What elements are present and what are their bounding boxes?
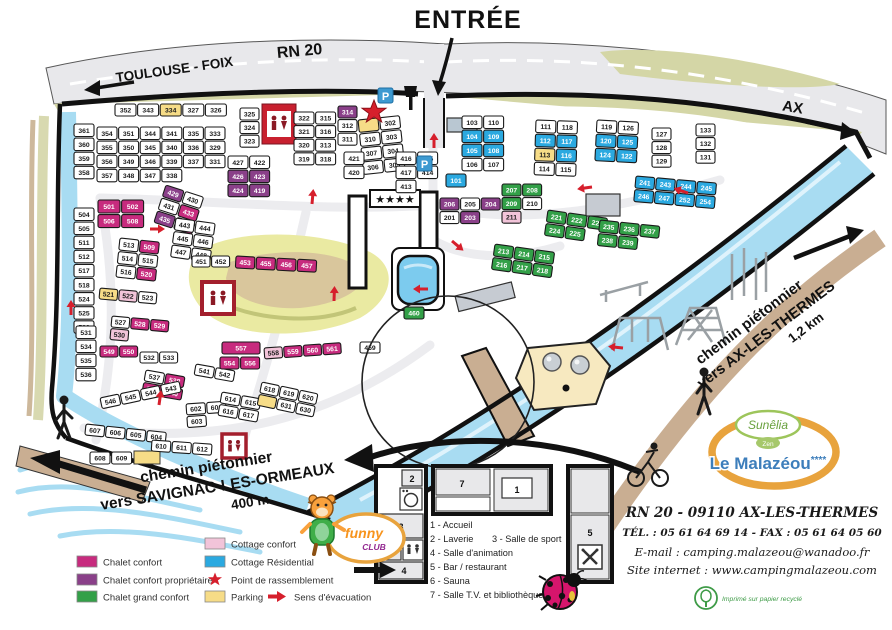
- plot-number: 112: [540, 138, 551, 145]
- plot-number: 252: [679, 197, 691, 205]
- plot-number: 208: [526, 188, 538, 195]
- plot-number: 356: [101, 159, 113, 166]
- plot-number: 518: [78, 282, 90, 289]
- sanitary-building: [262, 104, 296, 144]
- legend-label: Cottage Résidential: [231, 558, 314, 569]
- plot-number: 327: [188, 108, 200, 115]
- plot-number: 347: [145, 173, 157, 180]
- plot-number: 106: [466, 162, 478, 169]
- plot-number: 455: [260, 261, 272, 269]
- plot-number: 334: [165, 108, 177, 115]
- plot-number: 238: [601, 237, 613, 245]
- plot-number: 501: [103, 204, 115, 211]
- plot-number: 513: [123, 242, 135, 250]
- plot-number: 529: [153, 323, 165, 331]
- tel-fax-line: TÉL. : 05 61 64 69 14 - FAX : 05 61 64 0…: [622, 525, 882, 539]
- plot-number: 110: [488, 120, 499, 127]
- plot-number: 612: [196, 446, 208, 454]
- legend-label: Chalet grand confort: [103, 593, 189, 604]
- plot-number: 605: [130, 432, 142, 440]
- plot-cluster: 127128129: [652, 128, 671, 167]
- plot-cluster: 314312311: [338, 106, 357, 145]
- plot-number: 117: [561, 139, 572, 146]
- plot-number: 339: [166, 159, 178, 166]
- jack-ball-icon: [563, 385, 570, 392]
- river-bank-vegetation: [38, 116, 44, 420]
- plot-number: 335: [188, 131, 200, 138]
- plot-number: 302: [384, 120, 396, 128]
- plot-number: 315: [320, 116, 332, 123]
- inset-legend-line: 7 - Salle T.V. et bibliothèque: [430, 590, 543, 600]
- inset-room-5: 5: [587, 528, 592, 538]
- plot-number: 350: [123, 145, 135, 152]
- plot-number: 338: [166, 173, 178, 180]
- plot-number: 417: [400, 170, 412, 177]
- plot-number: 235: [603, 224, 615, 232]
- plot-number: 512: [78, 254, 90, 261]
- plot-number: 329: [209, 145, 221, 152]
- plot-number: 609: [116, 456, 128, 463]
- plot-number: 340: [166, 145, 178, 152]
- washing-machine-icon: [400, 488, 422, 510]
- plot-number: 427: [232, 160, 244, 167]
- inset-room-1: 1: [514, 485, 519, 495]
- plot-number: 504: [78, 212, 90, 219]
- plot-cluster: 557: [222, 342, 260, 354]
- parking-sign-label: P: [382, 91, 389, 103]
- plot-number: 352: [120, 108, 132, 115]
- plot-number: 131: [700, 155, 712, 162]
- plot-number: 104: [466, 134, 478, 141]
- plot-number: 559: [287, 349, 299, 357]
- plot-number: 511: [79, 240, 90, 247]
- plot-number: 203: [464, 215, 476, 222]
- plot-number: 611: [176, 445, 188, 453]
- address-line: RN 20 - 09110 AX-LES-THERMES: [625, 505, 879, 521]
- plot-number: 114: [539, 166, 550, 173]
- plot-number: 509: [143, 244, 155, 252]
- plot-number: 532: [143, 355, 155, 362]
- entree-label: ENTRÉE: [414, 5, 521, 34]
- parking-sign-label: P: [421, 159, 428, 171]
- plot-number: 105: [466, 148, 478, 155]
- plot-number: 361: [78, 128, 90, 135]
- plot-number: 530: [113, 332, 125, 340]
- plot-number: 349: [123, 159, 135, 166]
- plot-number: 460: [408, 311, 420, 318]
- plot-number: 312: [342, 123, 354, 130]
- plot-number: 606: [109, 430, 121, 438]
- plot-cluster: 325324323: [240, 108, 259, 147]
- inset-legend-line: 2 - Laverie: [430, 534, 473, 544]
- plot-number: 536: [80, 372, 92, 379]
- inset-room-7: 7: [459, 479, 464, 489]
- plot-number: 323: [244, 139, 256, 146]
- plot-cluster: 504505511512517518524525526: [74, 208, 94, 333]
- plot-number: 524: [78, 296, 90, 303]
- plot-number: 241: [639, 180, 651, 188]
- plot-number: 502: [127, 204, 139, 211]
- plot-number: 560: [307, 347, 319, 355]
- plot-number: 118: [562, 125, 573, 132]
- plot-number: 333: [209, 131, 221, 138]
- plot-number: 128: [656, 145, 668, 152]
- legend-item: Chalet grand confort: [77, 591, 189, 604]
- plot-number: 453: [239, 260, 251, 268]
- parking-sign: P: [417, 156, 432, 171]
- river-bank-path: [29, 120, 33, 416]
- plot-number: 210: [526, 201, 538, 208]
- funny-club-label: funny: [345, 525, 384, 541]
- plot-number: 557: [235, 346, 247, 353]
- plot-number: 115: [560, 167, 571, 174]
- zen-label: Zen: [762, 441, 774, 448]
- plot-number: 316: [320, 129, 332, 136]
- plot-number: 319: [298, 156, 310, 163]
- plot-number: 602: [190, 406, 202, 414]
- plot-number: 246: [638, 193, 650, 201]
- service-building: [586, 194, 620, 216]
- plot-number: 132: [700, 141, 712, 148]
- plot-number: 452: [215, 259, 227, 266]
- plot-number: 243: [659, 182, 671, 190]
- plot-number: 508: [127, 219, 139, 226]
- plot-number: 303: [386, 134, 398, 142]
- plot-number: 245: [700, 185, 712, 193]
- inset-building-middle: 7 1: [433, 466, 551, 514]
- plot-number: 554: [224, 361, 236, 368]
- plot-number: 521: [102, 291, 114, 299]
- plot-number: 311: [342, 137, 353, 144]
- plot-number: 550: [123, 349, 135, 356]
- legend-swatch: [205, 591, 225, 602]
- legend-item: Cottage Résidential: [205, 556, 314, 569]
- legend-swatch: [77, 591, 97, 602]
- petanque-area: [516, 342, 610, 410]
- plot-number: 120: [600, 138, 612, 146]
- plot-number: 523: [141, 295, 153, 303]
- plot-number: 247: [658, 195, 670, 203]
- plot-number: 322: [298, 116, 310, 123]
- plot-number: 129: [656, 159, 668, 166]
- plot-number: 558: [268, 350, 280, 358]
- legend-label: Sens d'évacuation: [294, 593, 371, 604]
- plot-number: 201: [444, 215, 456, 222]
- plot-number: 419: [254, 188, 266, 195]
- eco-label: Imprimé sur papier recyclé: [722, 596, 802, 603]
- plot-number: 533: [163, 355, 175, 362]
- plot-number: 254: [699, 199, 711, 207]
- plot-number: 343: [142, 108, 154, 115]
- plot-number: 318: [320, 156, 332, 163]
- boule-icon: [571, 356, 589, 374]
- plot-number: 116: [561, 153, 572, 160]
- plot-number: 320: [298, 143, 310, 150]
- plot-number: 416: [400, 156, 412, 163]
- plot-number: 331: [209, 159, 221, 166]
- plot-number: 556: [244, 361, 256, 368]
- campsite-map: ★★★★: [0, 0, 892, 630]
- inset-legend-line: 5 - Bar / restaurant: [430, 562, 507, 572]
- plot-number: 125: [622, 139, 634, 147]
- parking-area: [134, 451, 160, 464]
- plot-number: 457: [301, 263, 313, 271]
- plot-number: 505: [78, 226, 90, 233]
- legend-label: Point de rassemblement: [231, 576, 334, 587]
- plot-number: 514: [121, 255, 133, 263]
- plot-number: 122: [621, 153, 633, 161]
- plot-number: 413: [400, 184, 412, 191]
- plot-number: 506: [103, 219, 115, 226]
- inset-room-4: 4: [401, 566, 406, 576]
- plot-number: 426: [232, 174, 244, 181]
- plot-number: 608: [94, 456, 106, 463]
- plot-number: 314: [342, 110, 354, 117]
- plot-number: 119: [601, 124, 613, 132]
- plot-number: 358: [78, 170, 90, 177]
- plot-number: 348: [123, 173, 135, 180]
- plot-number: 307: [366, 150, 378, 158]
- sunelia-label: Sunêlia: [748, 418, 788, 432]
- legend-label: Cottage confort: [231, 540, 296, 551]
- sanitary-building: [202, 282, 234, 314]
- plot-number: 236: [623, 226, 635, 234]
- plot-number: 211: [506, 215, 517, 222]
- email-line: E-mail : camping.malazeou@wanadoo.fr: [634, 545, 871, 559]
- plot-number: 108: [488, 148, 500, 155]
- plot-number: 561: [326, 346, 338, 354]
- legend-label: Chalet confort: [103, 558, 163, 569]
- plot-number: 357: [101, 173, 113, 180]
- plot-number: 310: [364, 136, 376, 144]
- legend-swatch: [77, 574, 97, 585]
- boule-icon: [543, 353, 561, 371]
- legend-label: Chalet confort propriétaire: [103, 576, 213, 587]
- wc-icon: [403, 540, 423, 560]
- plot-number: 360: [78, 142, 90, 149]
- plot-number: 337: [188, 159, 200, 166]
- plot-number: 239: [622, 240, 634, 248]
- plot-number: 207: [506, 188, 518, 195]
- plot-number: 531: [80, 330, 92, 337]
- plot-number: 520: [140, 271, 152, 279]
- legend-label: Parking: [231, 593, 263, 604]
- plot-number: 516: [120, 269, 132, 277]
- building-block: [349, 196, 366, 288]
- ax-label: AX: [781, 98, 804, 118]
- plot-cluster: 101: [446, 174, 466, 187]
- legend-swatch: [205, 538, 225, 549]
- plot-number: 424: [232, 188, 244, 195]
- plot-number: 111: [540, 124, 551, 131]
- plot-number: 124: [599, 152, 611, 160]
- plot-number: 354: [101, 131, 113, 138]
- plot-number: 423: [254, 174, 266, 181]
- plot-number: 421: [348, 156, 360, 163]
- plot-number: 603: [191, 418, 203, 426]
- inset-legend-line: 6 - Sauna: [430, 576, 471, 586]
- entrance-road: [424, 44, 444, 148]
- plot-number: 549: [103, 349, 115, 356]
- plot-number: 346: [145, 159, 157, 166]
- inset-legend-line: 4 - Salle d'animation: [430, 548, 513, 558]
- legend-swatch: [205, 556, 225, 567]
- plot-number: 326: [210, 108, 222, 115]
- legend-item: Chalet confort propriétaire: [77, 574, 213, 587]
- plot-number: 420: [348, 170, 360, 177]
- plot-number: 204: [485, 202, 497, 209]
- parking-sign: P: [378, 88, 393, 103]
- plot-number: 209: [506, 201, 518, 208]
- plot-number: 517: [78, 268, 90, 275]
- plot-number: 321: [298, 129, 310, 136]
- plot-number: 344: [145, 131, 157, 138]
- legend-item: Chalet confort: [77, 556, 163, 569]
- plot-number: 107: [488, 162, 500, 169]
- plot-number: 456: [280, 262, 292, 270]
- plot-number: 515: [142, 258, 154, 266]
- four-star-sign-label: ★★★★: [375, 194, 415, 206]
- plot-number: 113: [539, 152, 550, 159]
- plot-number: 306: [367, 164, 379, 172]
- plot-cluster: 352343334327326: [115, 104, 226, 116]
- plot-number: 237: [644, 228, 656, 236]
- plot-cluster: 460: [404, 307, 424, 319]
- plot-number: 101: [450, 178, 462, 185]
- legend-item: Cottage confort: [205, 538, 296, 551]
- plot-number: 359: [78, 156, 90, 163]
- plot-number: 103: [466, 120, 478, 127]
- plot-number: 355: [101, 145, 113, 152]
- plot-number: 610: [155, 443, 167, 451]
- plot-number: 205: [464, 202, 476, 209]
- plot-number: 336: [188, 145, 200, 152]
- plot-number: 534: [80, 344, 92, 351]
- restaurant-icon: [578, 545, 602, 569]
- funny-club-sublabel: CLUB: [362, 542, 386, 552]
- plot-number: 422: [254, 160, 266, 167]
- plot-number: 133: [700, 128, 712, 135]
- plot-number: 206: [444, 202, 456, 209]
- plot-number: 313: [320, 143, 332, 150]
- inset-legend-line: 3 - Salle de sport: [492, 534, 562, 544]
- plot-number: 126: [622, 125, 634, 133]
- legend-swatch: [77, 556, 97, 567]
- plot-number: 345: [145, 145, 157, 152]
- plot-number: 324: [244, 125, 256, 132]
- inset-legend-line: 1 - Accueil: [430, 520, 472, 530]
- site-line: Site internet : www.campingmalazeou.com: [627, 563, 877, 577]
- plot-number: 351: [123, 131, 135, 138]
- plot-number: 527: [114, 319, 126, 327]
- plot-number: 607: [89, 427, 101, 435]
- plot-cluster: 133132131: [696, 124, 715, 163]
- plot-number: 528: [134, 321, 146, 329]
- plot-number: 109: [488, 134, 500, 141]
- plot-number: 525: [78, 310, 90, 317]
- plot-number: 522: [122, 293, 134, 301]
- plot-number: 341: [166, 131, 178, 138]
- inset-room-2: 2: [409, 474, 414, 484]
- inset-building-right: 5: [568, 466, 612, 582]
- brand-label: Le Malazéou****: [710, 454, 827, 473]
- plot-number: 325: [244, 112, 256, 119]
- legend-item: Parking: [205, 591, 263, 604]
- plot-number: 535: [80, 358, 92, 365]
- plot-number: 451: [195, 259, 207, 266]
- plot-number: 127: [656, 132, 668, 139]
